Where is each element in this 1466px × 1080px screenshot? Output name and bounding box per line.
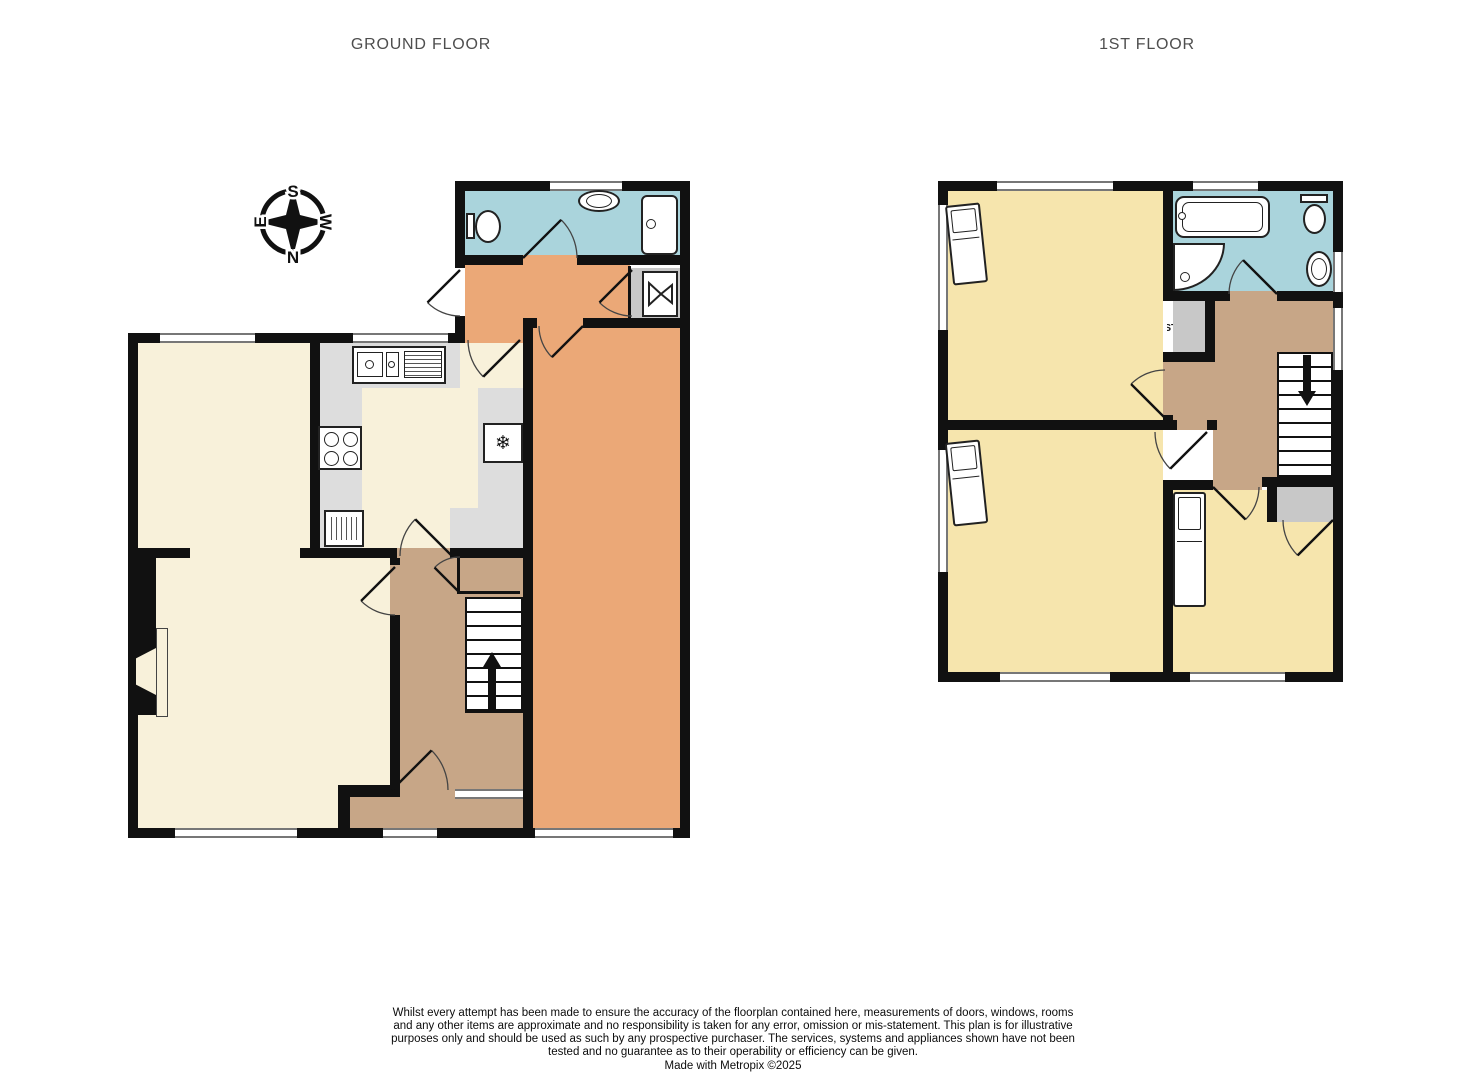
bedroom3-doorway-floor [1213, 480, 1262, 490]
lounge-doorway-floor [390, 565, 400, 615]
bathroom-sink-inner [1311, 258, 1327, 280]
kitchen-hall-doorway-floor [397, 548, 450, 558]
bed-pillow [950, 445, 977, 471]
wall [1258, 181, 1343, 191]
snowflake-icon: ❄ [485, 425, 521, 461]
bath-inner [1182, 202, 1263, 232]
wall [297, 828, 383, 838]
toilet-tank [1300, 194, 1328, 203]
wall [1163, 480, 1173, 682]
down-arrow-head [1298, 391, 1316, 406]
wall [1277, 291, 1343, 301]
bedroom1-doorway-floor [1177, 420, 1207, 430]
hob-burner [343, 432, 358, 447]
wall [628, 266, 631, 318]
window [1000, 672, 1110, 682]
down-arrow-shaft [1303, 355, 1311, 392]
compass-east-label: E [251, 216, 270, 227]
wall [1333, 370, 1343, 682]
wall [128, 828, 175, 838]
wall [300, 548, 397, 558]
floorplan: GROUND FLOOR 1ST FLOOR S N E W DINING RO… [0, 0, 1466, 1080]
cupboard-floor [1277, 487, 1333, 522]
compass-icon: S N E W [247, 176, 339, 268]
up-arrow-shaft [488, 666, 496, 713]
fridge-icon: ❄ [483, 423, 523, 463]
wall [938, 181, 948, 205]
disclaimer: Whilst every attempt has been made to en… [388, 1007, 1078, 1074]
radiator-lines [331, 517, 357, 540]
wall [1207, 420, 1217, 430]
garage-floor [533, 328, 680, 828]
wall [455, 255, 523, 265]
wall [437, 828, 535, 838]
bedroom2-doorway-floor [1163, 362, 1173, 415]
kitchen-sink-drain [388, 361, 395, 368]
window [160, 333, 255, 343]
door-swing-arc [427, 303, 460, 316]
utility-floor [465, 265, 630, 318]
wall [455, 181, 550, 191]
wall [1333, 181, 1343, 252]
wall [457, 591, 520, 594]
first-floor-title: 1ST FLOOR [1099, 36, 1195, 54]
wall [1285, 672, 1343, 682]
wall [523, 328, 533, 838]
bath-tap [1178, 212, 1186, 220]
kitchen-sink-drain [365, 360, 374, 369]
wall [938, 672, 1000, 682]
window [1193, 181, 1258, 191]
disclaimer-text: Whilst every attempt has been made to en… [388, 1007, 1078, 1059]
window [535, 828, 673, 838]
boiler-icon [642, 271, 678, 317]
wall [457, 558, 460, 593]
toilet-icon [1303, 204, 1326, 234]
bathroom-doorway-floor [1230, 291, 1277, 301]
dining-lounge-opening-floor [190, 548, 300, 558]
wall [938, 572, 948, 682]
wall [390, 615, 400, 797]
door-leaf [427, 270, 460, 303]
toilet-tank [466, 213, 475, 239]
first-storage-floor [1173, 301, 1205, 352]
window [1333, 308, 1343, 370]
window [1333, 252, 1343, 292]
wall [680, 181, 690, 838]
ground-floor-title: GROUND FLOOR [351, 36, 491, 54]
window [383, 828, 437, 838]
shower-drain [1180, 272, 1190, 282]
up-arrow-head [483, 652, 501, 667]
bed-line [1177, 541, 1202, 542]
window [455, 789, 523, 799]
porch-floor [345, 797, 523, 828]
landing-alcove-floor [1173, 362, 1213, 420]
wall [448, 333, 465, 343]
wall [1163, 352, 1215, 362]
compass-south-label: S [287, 182, 298, 201]
wc-shower-drain [646, 219, 656, 229]
bed-pillow [950, 208, 977, 233]
wall [1267, 487, 1277, 522]
wall [450, 548, 533, 558]
wall [1113, 181, 1193, 191]
window [175, 828, 297, 838]
wall [583, 318, 690, 328]
wc-doorway-floor [523, 255, 577, 265]
wc-sink-icon [586, 194, 612, 208]
wall [390, 558, 400, 565]
compass-west-label: W [316, 214, 335, 231]
wall [523, 318, 537, 328]
utility-doorway-floor [465, 318, 523, 343]
hob-burner [324, 432, 339, 447]
window [997, 181, 1113, 191]
wall [1163, 291, 1230, 301]
kitchen-counter [450, 508, 523, 548]
dining-room-floor [138, 343, 310, 548]
door-leaf [1170, 432, 1207, 469]
kitchen-sink-drainer [404, 351, 442, 378]
hob-burner [324, 451, 339, 466]
garage-doorway-floor [537, 318, 583, 328]
hearth-surround [156, 628, 168, 717]
window [550, 181, 622, 191]
radiator-icon [324, 510, 364, 547]
fan-glyph [644, 273, 676, 315]
wall [938, 330, 948, 450]
wall [577, 255, 690, 265]
wall [255, 333, 353, 343]
bed-line [952, 237, 979, 241]
bed-icon [1173, 492, 1206, 607]
bed-line [952, 475, 979, 479]
credit-line: Made with Metropix ©2025 [388, 1060, 1078, 1073]
window [353, 333, 448, 343]
wall [938, 420, 1177, 430]
compass-north-label: N [287, 248, 299, 267]
bed-pillow [1178, 497, 1201, 530]
window [1190, 672, 1285, 682]
wall [1163, 191, 1173, 291]
wall [1262, 477, 1343, 487]
wall [1110, 672, 1190, 682]
toilet-icon [475, 210, 501, 243]
hob-burner [343, 451, 358, 466]
wall [673, 828, 690, 838]
